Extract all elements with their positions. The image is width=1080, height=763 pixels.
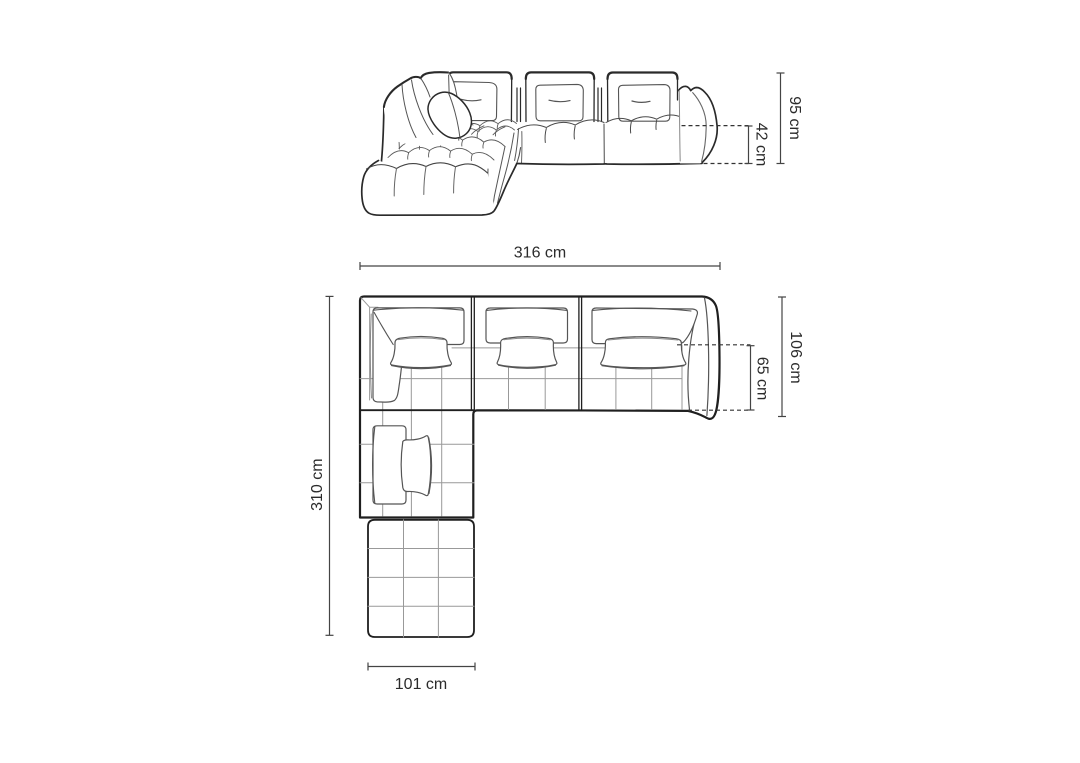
svg-text:42 cm: 42 cm [753, 123, 770, 167]
svg-text:101 cm: 101 cm [395, 676, 447, 693]
svg-text:106 cm: 106 cm [787, 331, 804, 383]
svg-text:310 cm: 310 cm [309, 458, 326, 510]
svg-text:316 cm: 316 cm [514, 245, 566, 262]
svg-text:65 cm: 65 cm [754, 357, 771, 401]
svg-text:95 cm: 95 cm [786, 96, 803, 140]
